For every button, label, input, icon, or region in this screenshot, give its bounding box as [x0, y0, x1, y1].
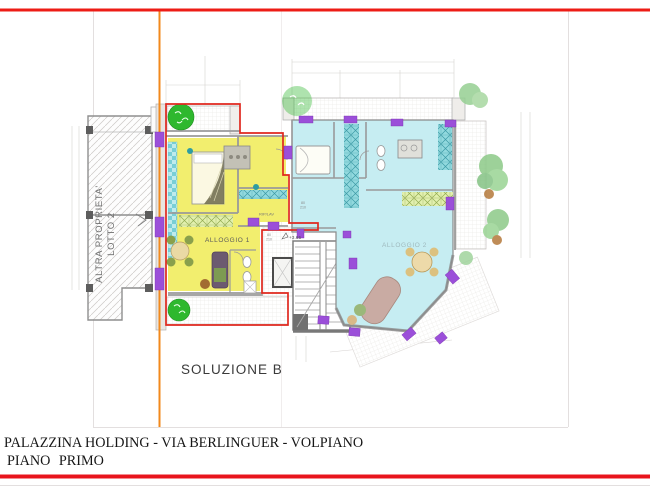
toilet	[243, 257, 251, 268]
svg-text:210: 210	[266, 238, 272, 242]
solution-label: SOLUZIONE B	[181, 362, 283, 377]
storage-label: RIP/LAV	[259, 212, 274, 217]
dining-table	[412, 252, 432, 272]
tree-icon	[168, 299, 190, 321]
bed	[296, 146, 330, 174]
svg-text:210: 210	[300, 206, 306, 210]
neighbor-label-line2: LOTTO 2	[106, 212, 117, 256]
tree-icon-faded	[282, 86, 312, 116]
svg-text:80: 80	[267, 233, 271, 237]
title-line2: PIANO PRIMO	[7, 453, 104, 469]
wardrobe	[438, 124, 452, 170]
kitchen-counter	[179, 215, 233, 227]
apartment2-terrace-top	[292, 98, 454, 120]
lamp-dot	[187, 148, 193, 154]
svg-text:+3.65: +3.65	[289, 235, 301, 241]
neighbor-label-line1: ALTRA PROPRIETA'	[94, 185, 105, 283]
pouf	[347, 315, 357, 325]
tree-icon	[168, 104, 194, 130]
apartment2-label: ALLOGGIO 2	[382, 242, 427, 249]
bidet	[377, 160, 385, 171]
floor-plan-canvas: ALTRA PROPRIETA' LOTTO 2	[0, 0, 650, 487]
cushion	[354, 304, 366, 316]
dining-table	[171, 242, 189, 260]
kitchen-counter	[402, 192, 453, 206]
pouf	[200, 279, 210, 289]
lamp-dot	[253, 184, 259, 190]
title-line1: PALAZZINA HOLDING - VIA BERLINGUER - VOL…	[4, 435, 363, 451]
closet-band	[239, 190, 287, 199]
stove	[398, 140, 422, 158]
toilet	[377, 146, 385, 157]
elevator	[273, 258, 292, 287]
apartment1-label: ALLOGGIO 1	[205, 237, 250, 244]
drawing-sheet: ALTRA PROPRIETA' LOTTO 2	[0, 0, 650, 487]
svg-text:80: 80	[301, 201, 305, 205]
wardrobe	[344, 124, 359, 208]
